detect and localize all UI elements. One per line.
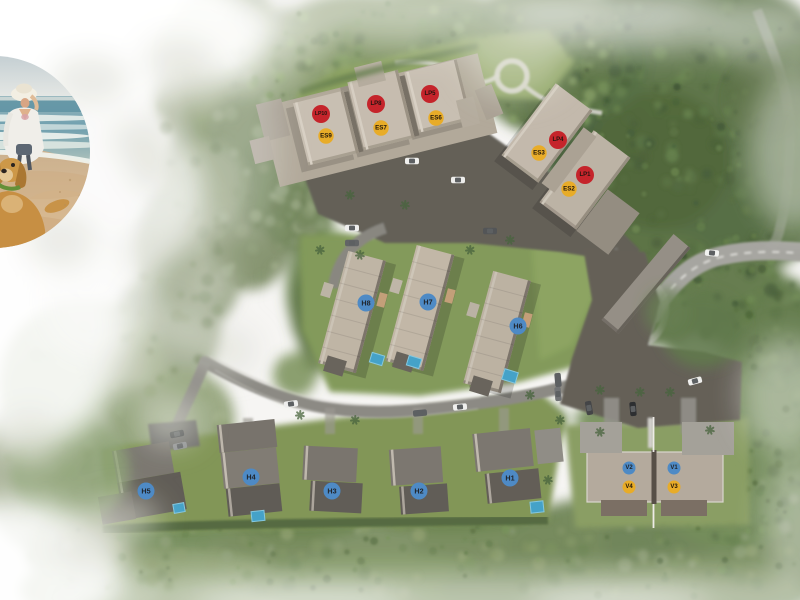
svg-text:V3: V3	[670, 484, 678, 490]
svg-text:ES7: ES7	[375, 125, 387, 132]
svg-text:H6: H6	[513, 322, 522, 331]
svg-text:ES9: ES9	[320, 133, 332, 140]
svg-text:LP10: LP10	[315, 111, 328, 117]
svg-text:LP8: LP8	[370, 101, 382, 107]
svg-text:ES3: ES3	[533, 150, 545, 157]
svg-text:H2: H2	[414, 487, 423, 496]
svg-text:V2: V2	[625, 465, 633, 471]
svg-text:ES6: ES6	[430, 115, 442, 122]
svg-text:H1: H1	[505, 474, 514, 483]
svg-text:LP5: LP5	[424, 91, 436, 97]
svg-text:H3: H3	[327, 487, 336, 496]
svg-text:H8: H8	[361, 299, 370, 308]
svg-text:LP4: LP4	[552, 137, 564, 143]
svg-text:V1: V1	[670, 465, 678, 471]
svg-text:V4: V4	[625, 484, 633, 490]
svg-text:ES2: ES2	[563, 186, 575, 193]
svg-text:LP1: LP1	[579, 172, 591, 178]
svg-text:H4: H4	[246, 473, 255, 482]
svg-text:H5: H5	[141, 487, 150, 496]
svg-text:H7: H7	[423, 298, 432, 307]
